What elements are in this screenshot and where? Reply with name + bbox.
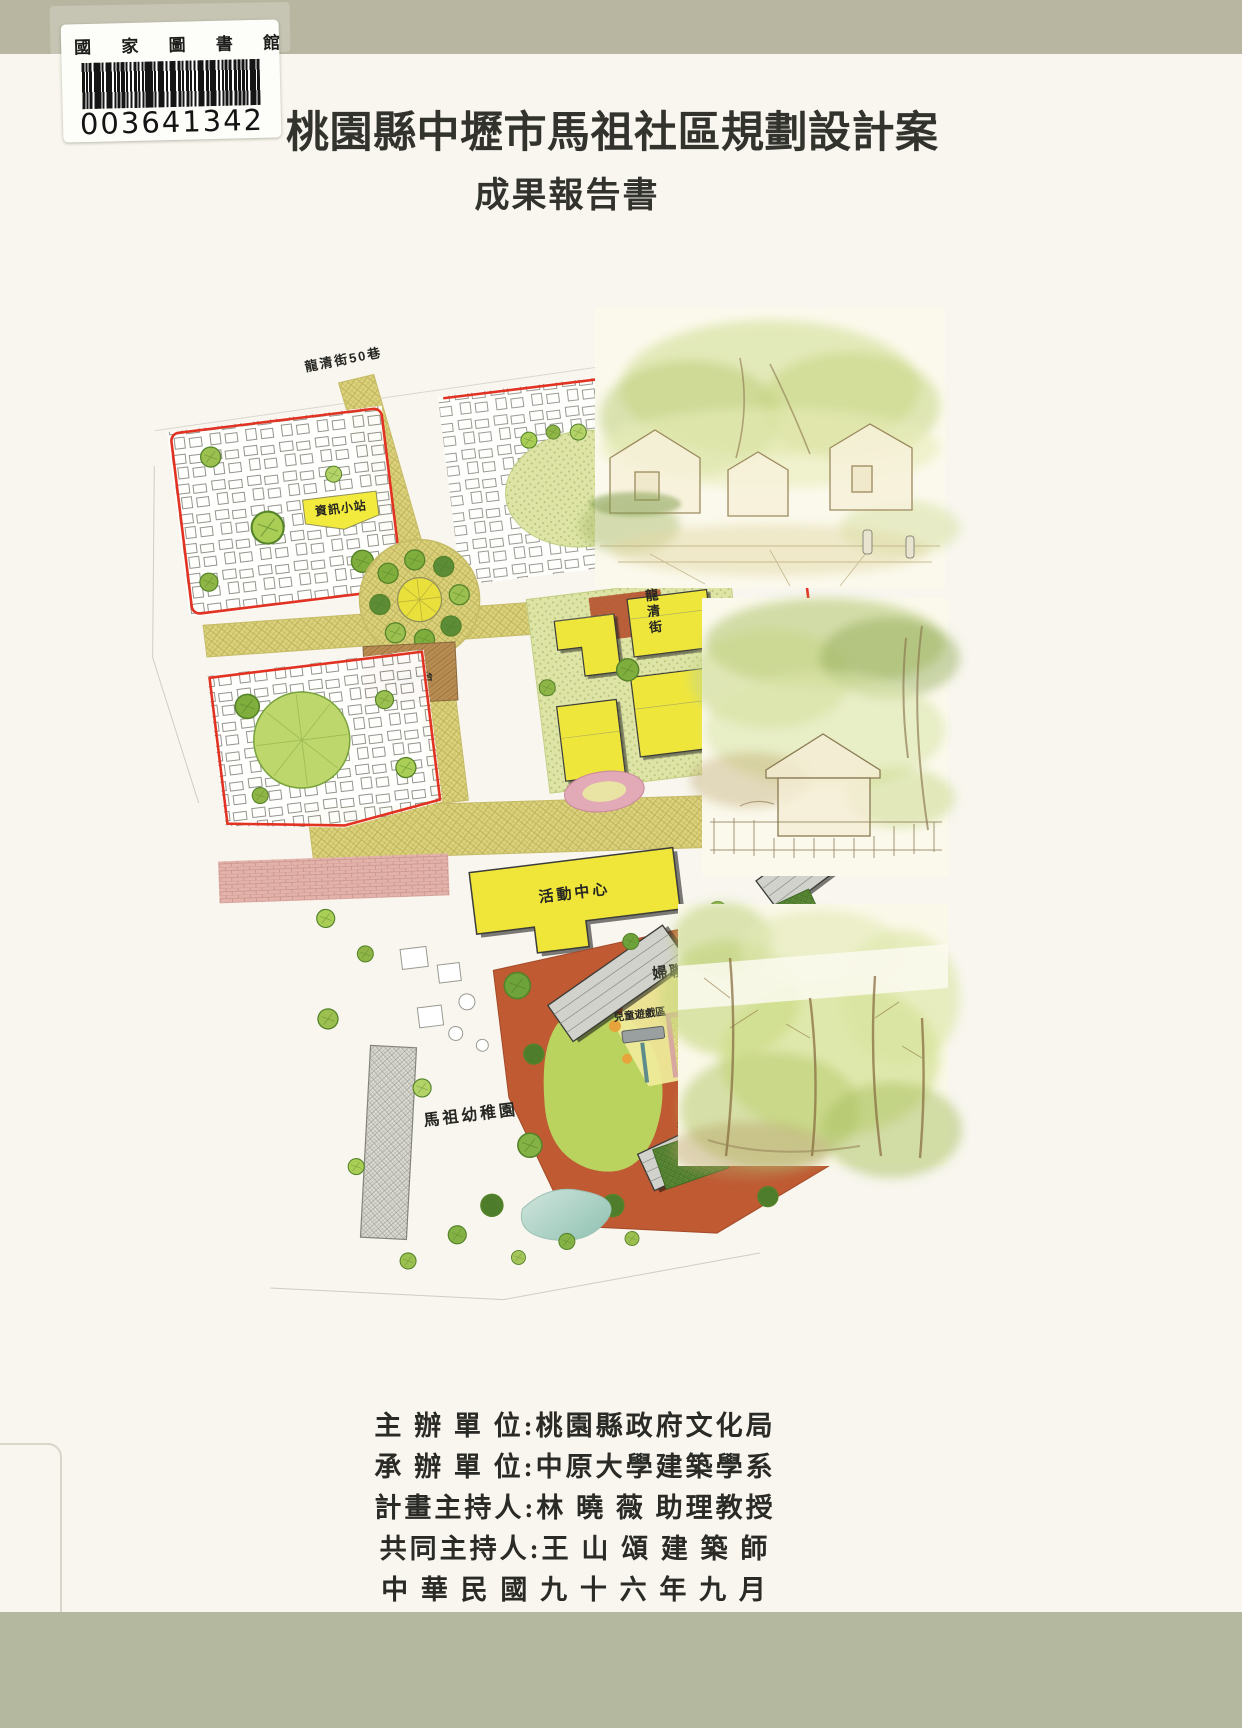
sketch-park-trees xyxy=(660,902,962,1178)
sketch-street-houses xyxy=(580,308,960,588)
credits-block: 主 辦 單 位:桃園縣政府文化局 承 辦 單 位:中原大學建築學系 計畫主持人:… xyxy=(0,1406,1150,1611)
report-subtitle: 成果報告書 xyxy=(247,167,887,218)
credit-date: 中 華 民 國 九 十 六 年 九 月 xyxy=(0,1570,1150,1611)
brick-walk-west xyxy=(218,853,449,903)
sketch-house-fence xyxy=(690,598,960,876)
label-street-top: 龍清街50巷 xyxy=(303,345,383,375)
kindergarten-area: 馬祖幼稚園 xyxy=(305,889,532,1247)
credit-executor: 承 辦 單 位:中原大學建築學系 xyxy=(0,1447,1150,1488)
report-title: 桃園縣中壢市馬祖社區規劃設計案 xyxy=(286,98,934,160)
label-kindergarten: 馬祖幼稚園 xyxy=(422,1100,519,1130)
credit-principal: 計畫主持人:林 曉 薇 助理教授 xyxy=(0,1488,1150,1529)
report-cover: 國 家 圖 書 館 003641342 桃園縣中壢市馬祖社區規劃設計案 成果報告… xyxy=(0,0,1242,1728)
cover-bottom-band xyxy=(0,1612,1242,1728)
site-plan-artwork: 資訊小站 xyxy=(130,298,970,1318)
library-name: 國 家 圖 書 館 xyxy=(61,28,280,58)
library-barcode-sticker: 國 家 圖 書 館 003641342 xyxy=(61,19,282,142)
barcode xyxy=(82,59,261,109)
barcode-number: 003641342 xyxy=(63,105,282,139)
credit-organizer: 主 辦 單 位:桃園縣政府文化局 xyxy=(0,1406,1150,1447)
credit-co-principal: 共同主持人:王 山 頌 建 築 師 xyxy=(0,1529,1150,1570)
